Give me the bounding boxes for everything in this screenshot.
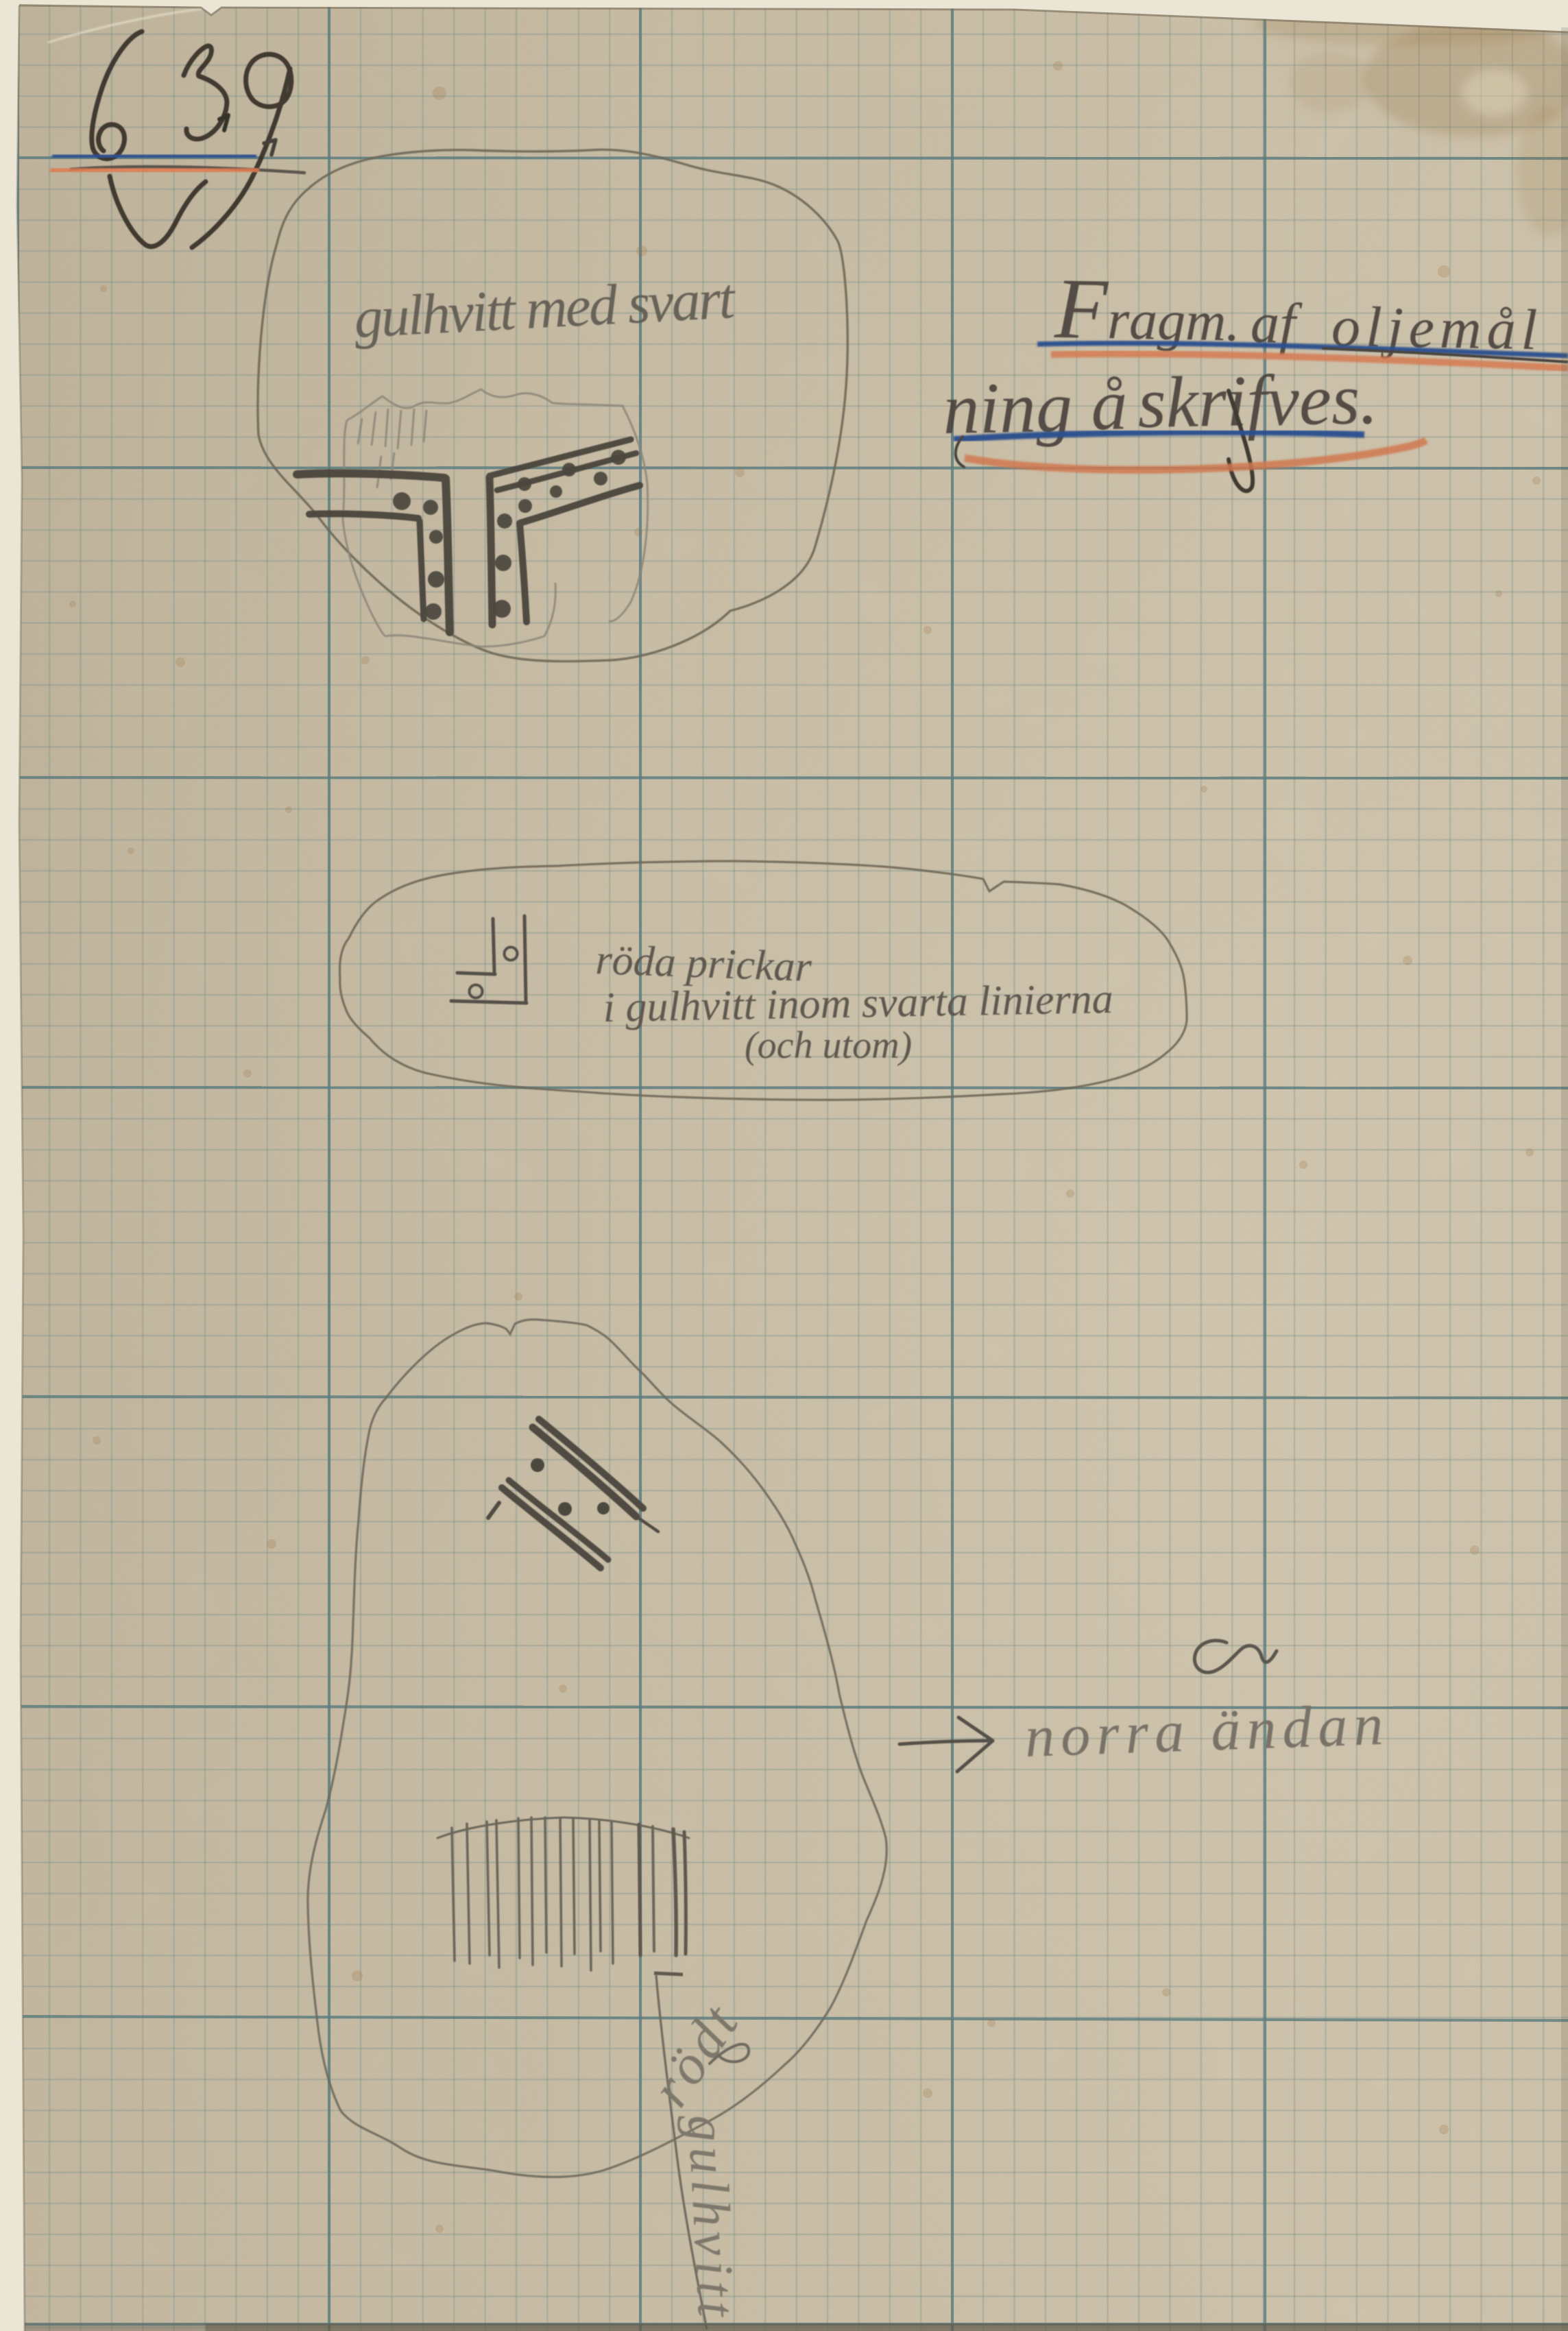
svg-text:gulhvitt: gulhvitt: [677, 2113, 747, 2323]
svg-text:(och utom): (och utom): [745, 1024, 912, 1067]
svg-text:norra ändan: norra ändan: [1024, 1691, 1390, 1770]
svg-text:i gulhvitt inom svarta liniern: i gulhvitt inom svarta linierna: [603, 976, 1113, 1031]
